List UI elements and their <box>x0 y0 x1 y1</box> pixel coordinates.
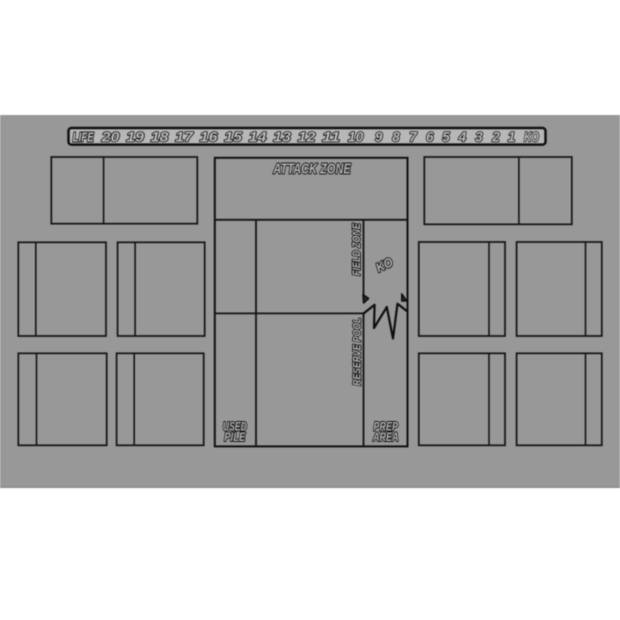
svg-text:18: 18 <box>151 130 169 145</box>
svg-text:8: 8 <box>392 130 400 145</box>
svg-text:2: 2 <box>491 130 500 145</box>
svg-text:16: 16 <box>200 130 218 145</box>
svg-text:9: 9 <box>375 130 383 145</box>
svg-text:10: 10 <box>348 130 364 145</box>
svg-text:20: 20 <box>101 130 120 145</box>
svg-text:6: 6 <box>426 130 434 145</box>
svg-text:PILE: PILE <box>224 431 246 444</box>
svg-text:17: 17 <box>175 130 194 145</box>
svg-text:3: 3 <box>475 130 483 145</box>
svg-text:15: 15 <box>224 130 242 145</box>
svg-text:4: 4 <box>458 130 467 145</box>
svg-text:5: 5 <box>442 130 450 145</box>
svg-text:19: 19 <box>126 130 144 145</box>
svg-text:LIFE: LIFE <box>73 130 95 144</box>
svg-text:KO: KO <box>524 130 539 145</box>
svg-text:11: 11 <box>322 130 340 145</box>
svg-text:1: 1 <box>508 130 516 145</box>
svg-text:AREA: AREA <box>372 431 398 444</box>
svg-text:RESERVE POOL: RESERVE POOL <box>352 318 364 386</box>
svg-text:14: 14 <box>249 130 267 145</box>
svg-text:ATTACK ZONE: ATTACK ZONE <box>273 161 352 177</box>
svg-text:12: 12 <box>298 130 316 145</box>
svg-text:13: 13 <box>273 130 291 145</box>
svg-text:FIELD ZONE: FIELD ZONE <box>351 223 363 276</box>
